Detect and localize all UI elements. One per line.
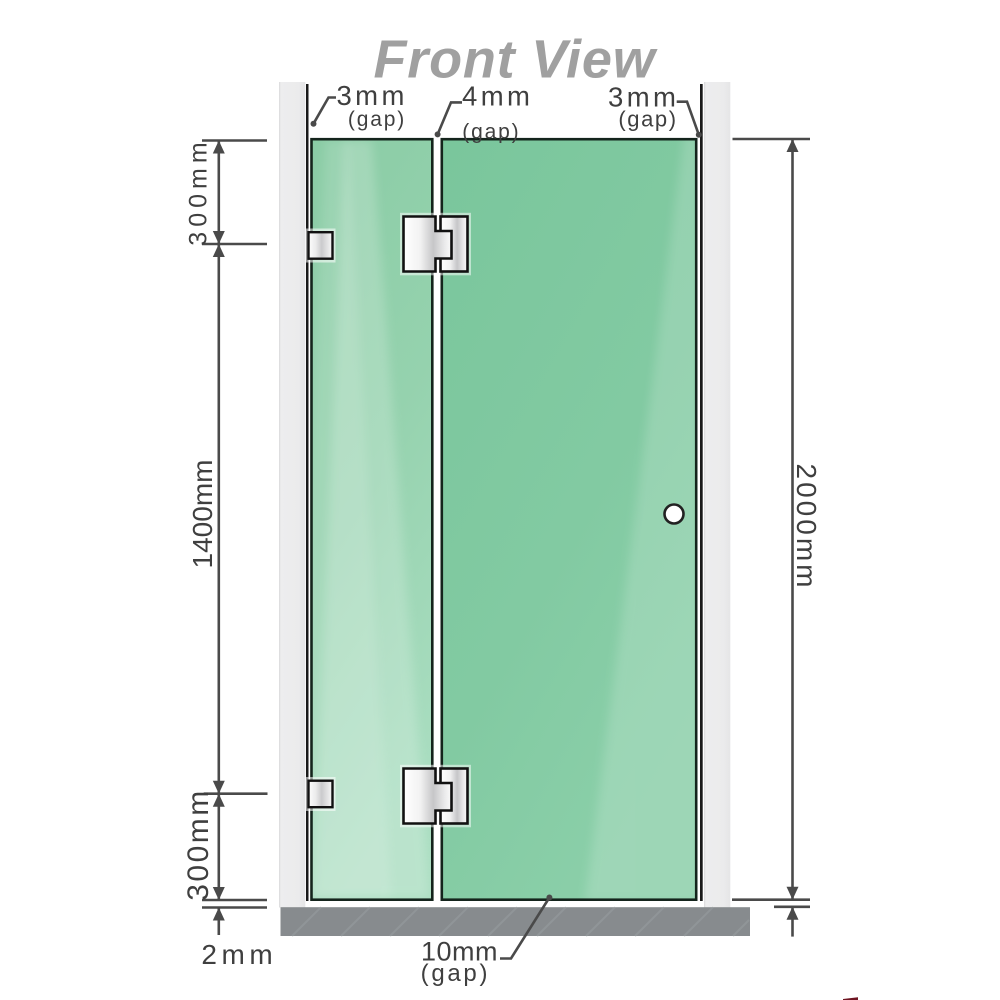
- svg-text:(gap): (gap): [618, 106, 677, 131]
- svg-text:2mm: 2mm: [201, 939, 277, 970]
- svg-text:(gap): (gap): [462, 120, 520, 143]
- svg-text:300mm: 300mm: [182, 788, 215, 901]
- svg-text:(gap): (gap): [421, 960, 491, 987]
- svg-text:2000mm: 2000mm: [791, 464, 822, 591]
- svg-text:1400mm: 1400mm: [187, 460, 218, 569]
- svg-text:300mm: 300mm: [185, 137, 213, 245]
- svg-text:3mm: 3mm: [336, 80, 407, 111]
- svg-text:4mm: 4mm: [462, 81, 533, 112]
- svg-text:(gap): (gap): [348, 108, 406, 131]
